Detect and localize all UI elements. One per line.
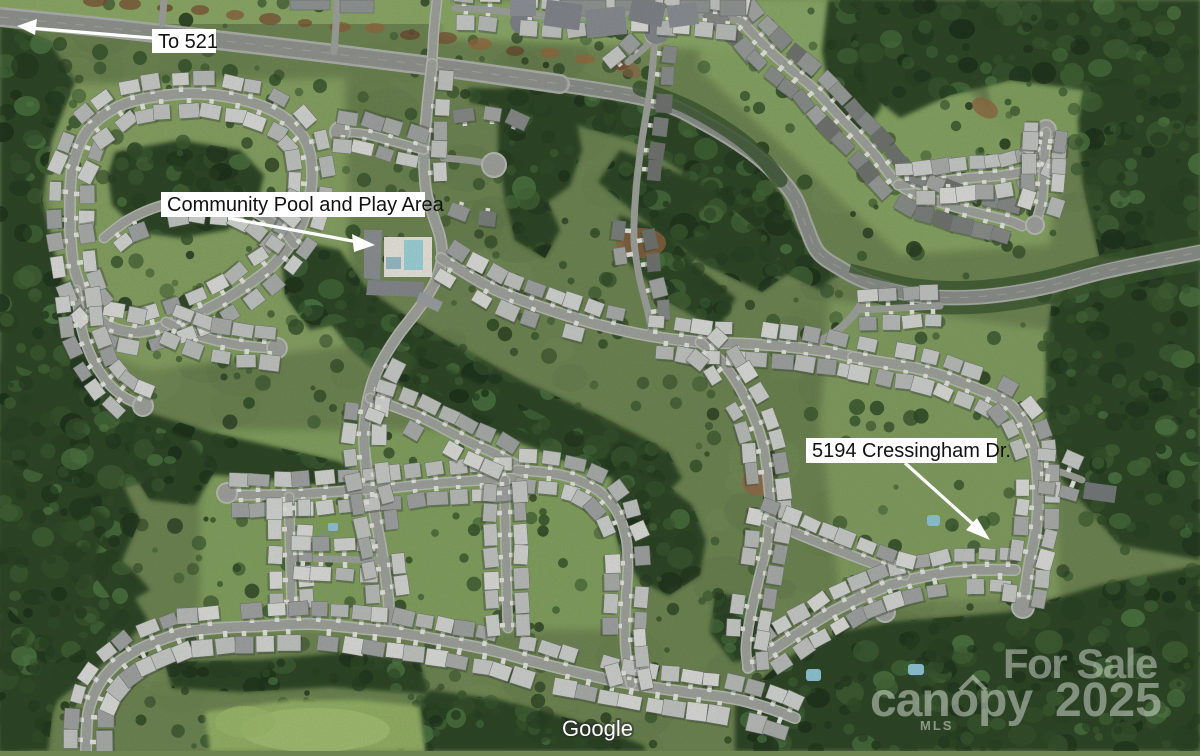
svg-text:Community Pool and Play Area: Community Pool and Play Area: [167, 194, 445, 216]
svg-text:2025: 2025: [1055, 674, 1162, 727]
svg-text:MLS: MLS: [920, 718, 953, 733]
svg-text:Google: Google: [562, 716, 633, 741]
svg-text:5194 Cressingham Dr.: 5194 Cressingham Dr.: [812, 440, 1011, 462]
svg-text:To 521: To 521: [158, 31, 218, 53]
